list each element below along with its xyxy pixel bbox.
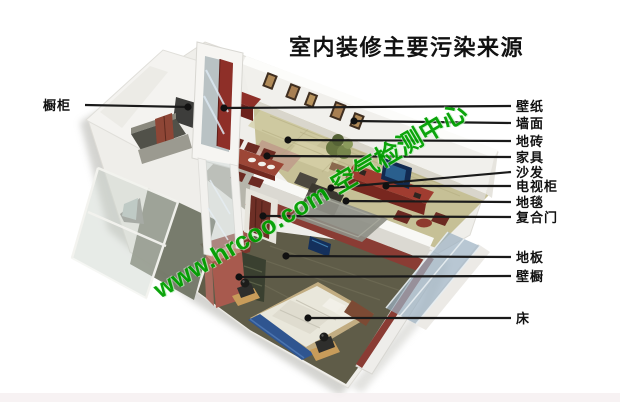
leader-dot-closet <box>235 273 242 280</box>
screenshot-root: www.hrcoo.com 空气检测中心 室内装修主要污染来源 橱柜壁纸墙面地砖… <box>0 0 620 402</box>
leader-line-cupboard <box>85 105 188 107</box>
leader-dot-tv-cabinet <box>382 182 389 189</box>
leader-dot-carpet <box>342 197 349 204</box>
label-closet: 壁橱 <box>516 266 544 285</box>
leader-line-closet <box>239 276 511 277</box>
leader-line-wall-surface <box>354 121 511 123</box>
label-bed: 床 <box>516 308 530 327</box>
leader-dot-cupboard <box>184 103 191 110</box>
leader-dot-wall-surface <box>350 117 357 124</box>
leader-dot-bed <box>304 314 311 321</box>
leader-line-carpet <box>346 201 511 202</box>
leader-dot-furniture <box>263 152 270 159</box>
leader-dot-floor-tile <box>284 136 291 143</box>
leader-line-floor-tile <box>288 140 511 141</box>
leader-line-wallpaper <box>224 106 511 108</box>
leader-dot-sofa <box>327 184 334 191</box>
leader-line-furniture <box>267 156 511 157</box>
leader-dot-wood-floor <box>282 252 289 259</box>
label-wall-surface: 墙面 <box>516 113 544 132</box>
bottom-border-strip <box>0 393 620 402</box>
leader-dot-composite-door <box>259 212 266 219</box>
leader-dot-wallpaper <box>220 104 227 111</box>
label-composite-door: 复合门 <box>516 207 558 226</box>
label-cupboard: 橱柜 <box>43 95 71 114</box>
leader-line-wood-floor <box>286 256 511 257</box>
label-wood-floor: 地板 <box>516 247 544 266</box>
page-title: 室内装修主要污染来源 <box>289 30 524 62</box>
leader-line-composite-door <box>263 216 511 217</box>
